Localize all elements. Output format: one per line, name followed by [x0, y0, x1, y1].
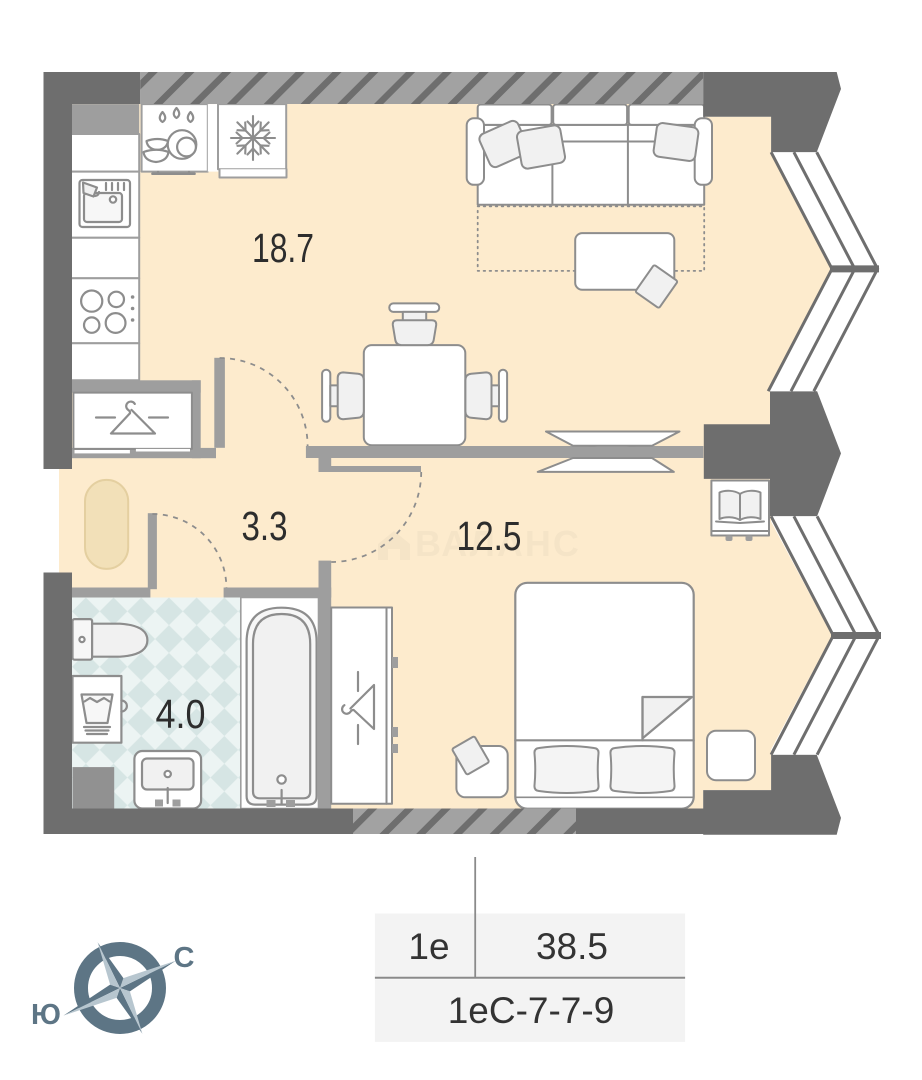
svg-text:18.7: 18.7 [252, 225, 314, 271]
svg-text:1e: 1e [408, 926, 449, 967]
svg-text:Ю: Ю [31, 999, 61, 1031]
svg-text:38.5: 38.5 [536, 926, 608, 967]
svg-text:4.0: 4.0 [156, 691, 206, 737]
svg-text:3.3: 3.3 [242, 503, 288, 549]
svg-text:С: С [174, 942, 195, 974]
svg-text:1eC-7-7-9: 1eC-7-7-9 [448, 990, 615, 1031]
svg-text:12.5: 12.5 [457, 513, 522, 559]
